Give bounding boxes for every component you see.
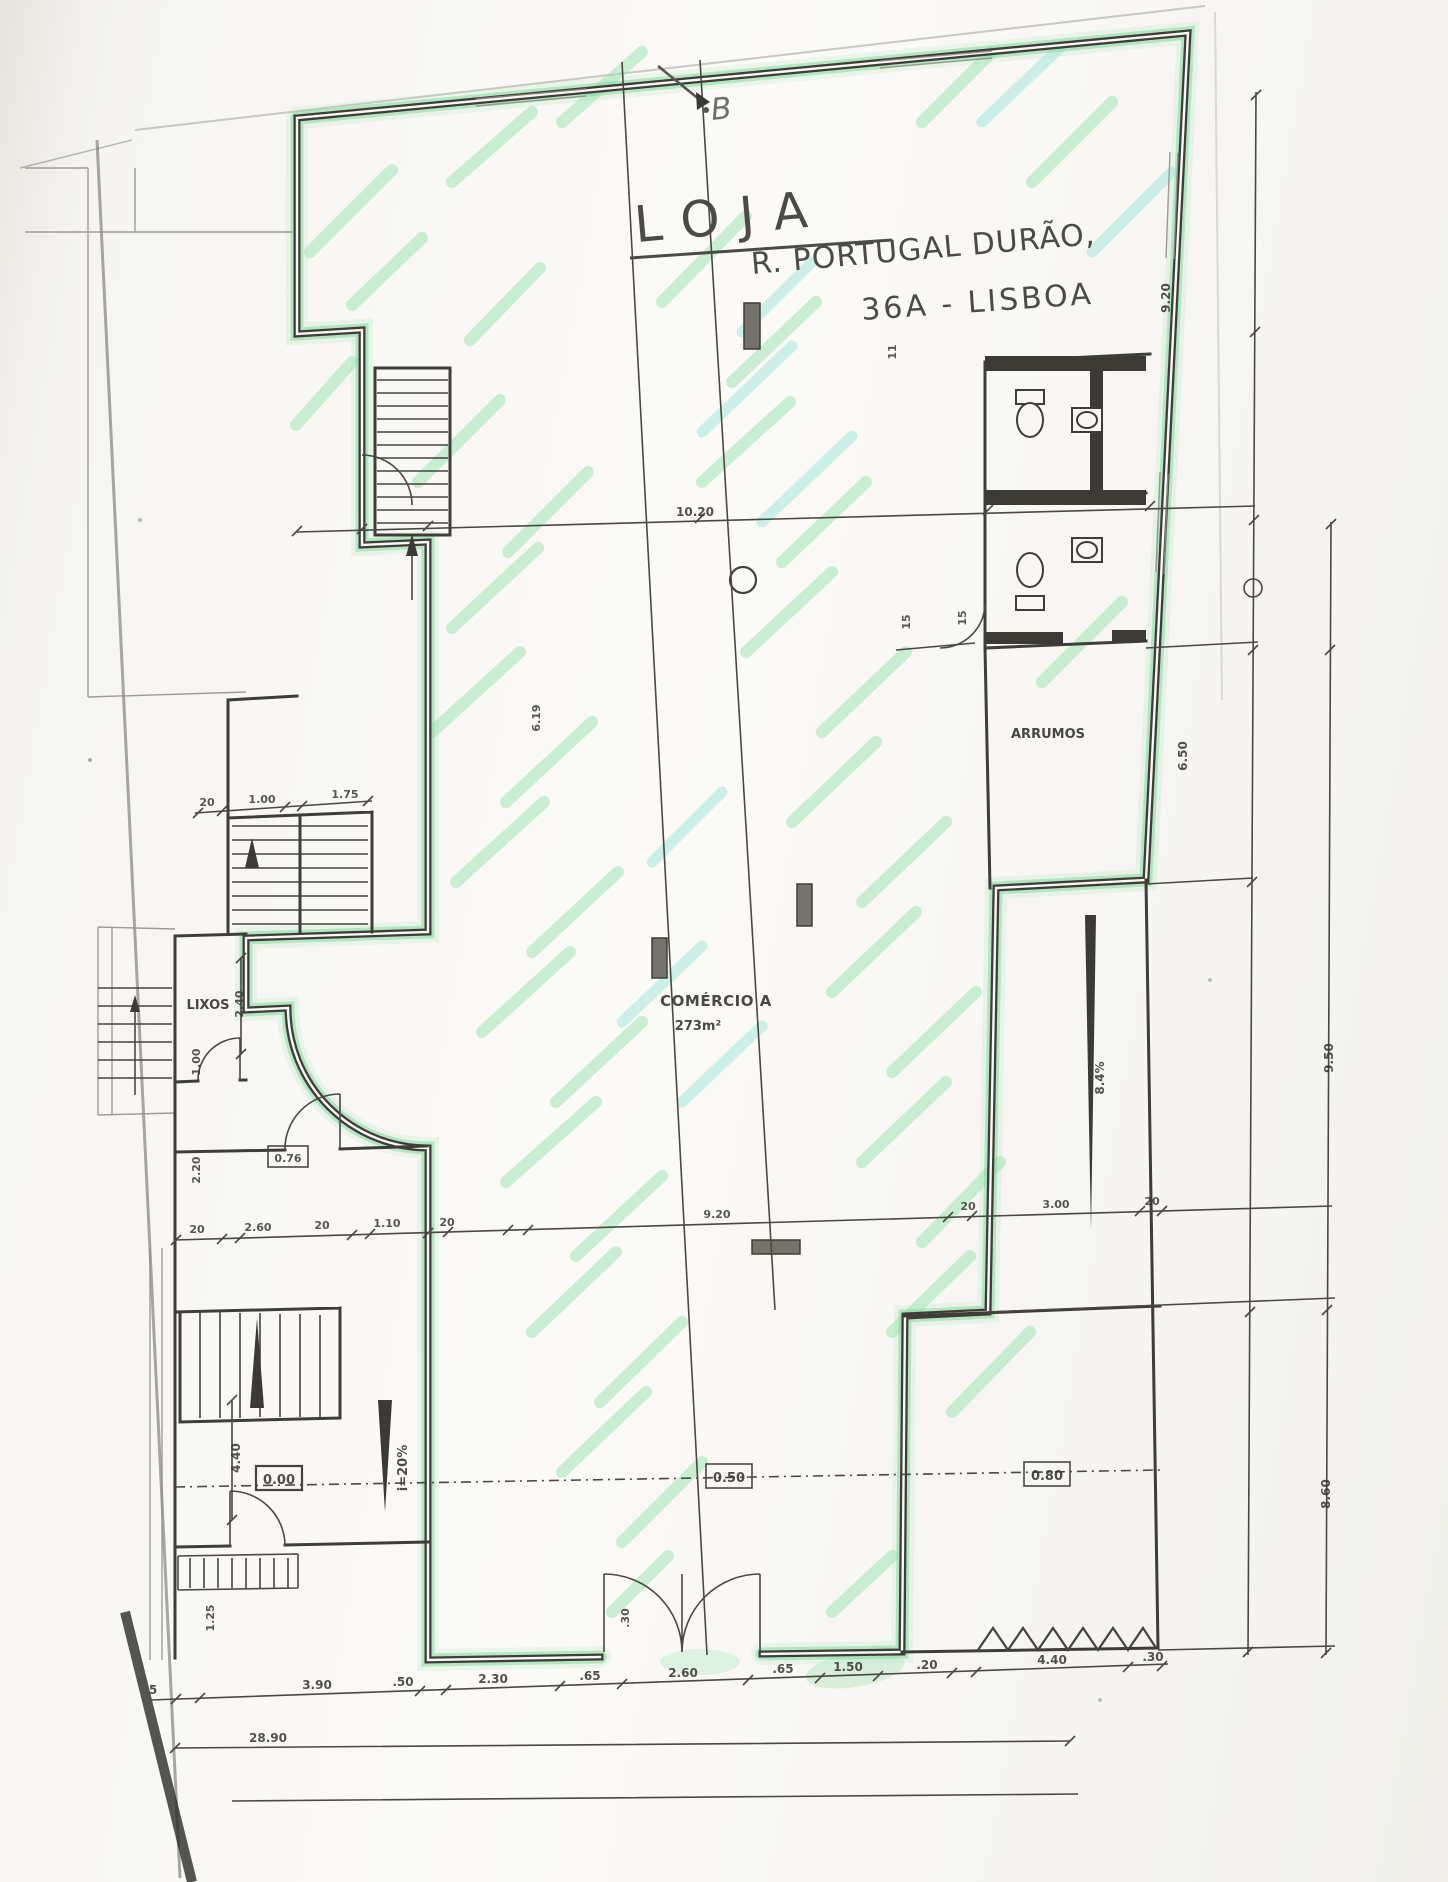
dim-bottom-1: 3.90 <box>302 1678 332 1692</box>
room-labels: COMÉRCIO A 273m² ARRUMOS LIXOS <box>186 727 1085 1034</box>
lower-stair-arrow <box>250 1318 264 1408</box>
scanned-floor-plan: LOJA R. PORTUGAL DURÃO, 36A - LISBOA B C… <box>0 0 1448 1882</box>
dim-bottom-5: 2.60 <box>668 1666 698 1680</box>
room-label-comercio: COMÉRCIO A <box>660 991 772 1010</box>
dim-wc-b: 15 <box>956 610 969 625</box>
dim-mid-5: 9.20 <box>703 1208 730 1221</box>
dim-wc-a: 15 <box>900 614 913 629</box>
column-circle <box>730 567 756 593</box>
handwritten-title: LOJA R. PORTUGAL DURÃO, 36A - LISBOA <box>630 179 1097 328</box>
pillars <box>652 303 812 1254</box>
slope-side-ramp: 8.4% <box>1093 1061 1107 1094</box>
entry-ramp-arrow <box>378 1400 392 1512</box>
dim-stair-0: 20 <box>199 796 215 809</box>
dim-mid-0: 20 <box>189 1223 205 1236</box>
dim-right-storage: 6.50 <box>1176 741 1190 771</box>
dim-stair-1: 1.00 <box>248 793 275 806</box>
dim-left-lixos: 2.40 <box>233 990 246 1017</box>
dim-bottom-2: .50 <box>392 1675 413 1689</box>
level-mid: 0.50 <box>713 1471 745 1486</box>
dim-bottom-10: .30 <box>1142 1650 1163 1664</box>
level-line <box>175 1470 1160 1487</box>
dim-right-upper: 9.20 <box>1159 283 1173 313</box>
dim-left-wall-upper: 1.00 <box>190 1048 203 1075</box>
room-label-arrumos: ARRUMOS <box>1011 727 1085 742</box>
dim-top-span: 10.20 <box>676 505 714 519</box>
dim-bottom-4: .65 <box>579 1669 600 1683</box>
dim-bottom-7: 1.50 <box>833 1660 863 1674</box>
dim-bottom-6: .65 <box>772 1662 793 1676</box>
dim-mid-6: 20 <box>960 1200 976 1213</box>
level-rear: 0.80 <box>1031 1469 1063 1484</box>
dim-bottom-0: 5 <box>149 1683 157 1697</box>
section-marker-b: B <box>709 91 733 128</box>
dim-mid-2: 20 <box>314 1219 330 1232</box>
dim-right-lower: 8.60 <box>1319 1479 1333 1509</box>
room-area-comercio: 273m² <box>675 1019 721 1034</box>
dim-bottom-3: 2.30 <box>478 1672 508 1686</box>
dim-left-wall-lower: 2.20 <box>190 1156 203 1183</box>
dim-mid-8: 20 <box>1144 1195 1160 1208</box>
dim-bottom-9: 4.40 <box>1037 1653 1067 1667</box>
dim-section-len: 6.19 <box>530 704 543 731</box>
level-entry: 0.00 <box>263 1473 295 1488</box>
dim-mid-4: 20 <box>439 1216 455 1229</box>
dim-bottom-8: .20 <box>916 1658 937 1672</box>
dim-overall: 28.90 <box>249 1731 287 1745</box>
dim-mid-3: 1.10 <box>373 1217 400 1230</box>
dim-mid-7: 3.00 <box>1042 1198 1069 1211</box>
title-number-city: 36A - LISBOA <box>860 277 1095 328</box>
mid-stair-arrow <box>245 838 259 868</box>
level-small-box: 0.76 <box>274 1152 301 1165</box>
dim-mid-1: 2.60 <box>244 1221 271 1234</box>
section-lines <box>622 60 775 1655</box>
slope-entry-ramp: i=20% <box>396 1445 411 1491</box>
dim-left-stair: 4.40 <box>229 1443 243 1473</box>
dim-door-width: .30 <box>619 1608 632 1628</box>
dim-right-mid: 9.50 <box>1322 1043 1336 1073</box>
dim-stair-2: 1.75 <box>331 788 358 801</box>
dim-left-bottom: 1.25 <box>204 1604 217 1631</box>
stair-hatching <box>178 380 448 1590</box>
door-swings <box>198 455 985 1652</box>
room-label-lixos: LIXOS <box>186 998 229 1013</box>
zigzag-hatch <box>978 1628 1156 1650</box>
dim-wc-c: 11 <box>886 344 899 359</box>
